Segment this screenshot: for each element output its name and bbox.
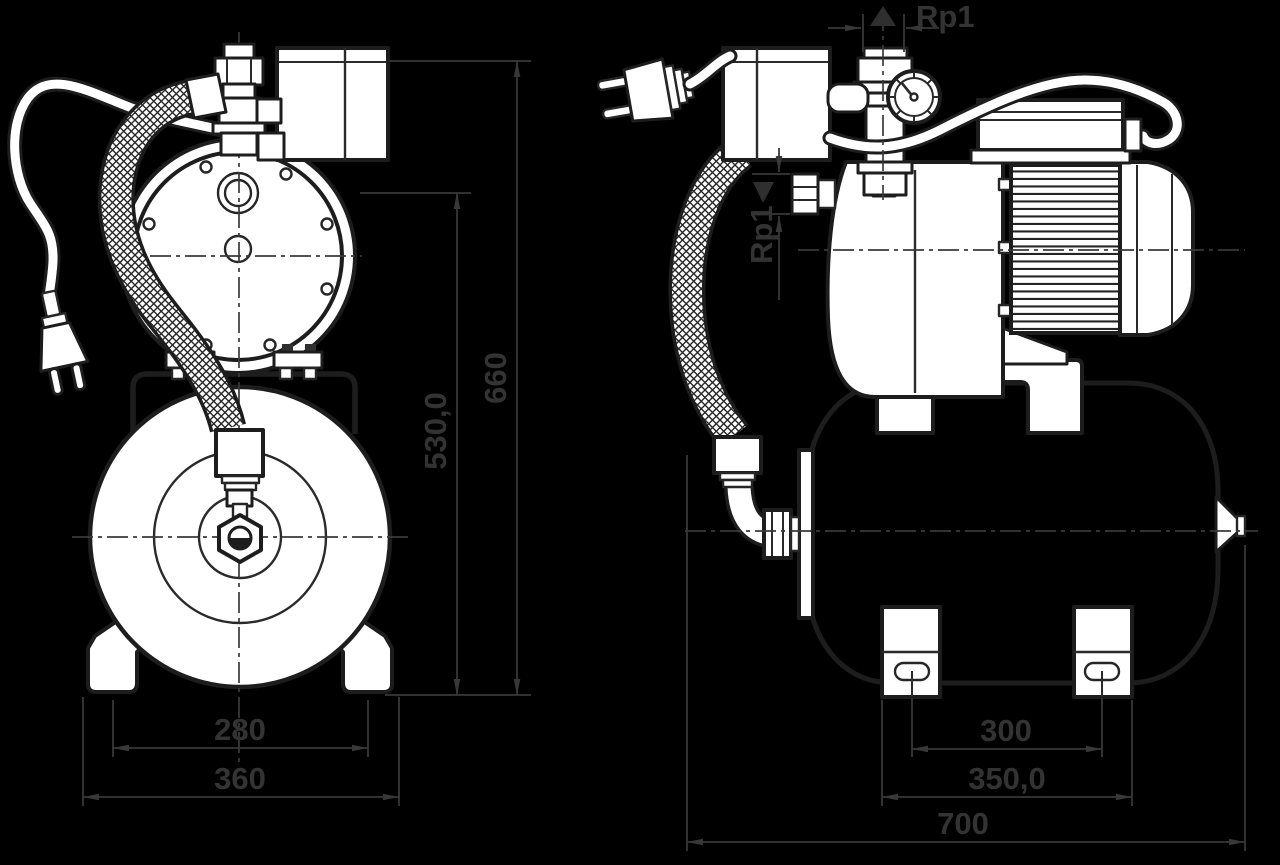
tee-lower [864, 173, 906, 195]
flow-arrow-up [870, 6, 896, 26]
clamp-nut [304, 368, 316, 379]
front-view: 660 530,0 280 360 [15, 32, 531, 806]
motor-fins [1011, 165, 1120, 333]
dimension-drawing-canvas: 660 530,0 280 360 [0, 0, 1280, 865]
air-valve-cone [1216, 497, 1238, 552]
cable-gland [1125, 119, 1141, 151]
pressure-switch-box-side [723, 48, 830, 160]
pressure-tank-side [806, 383, 1218, 683]
fill-port-inner [225, 180, 251, 206]
tee-branch-right [257, 99, 281, 123]
air-valve-cap [1237, 516, 1245, 536]
hose-ferrule-bottom [714, 437, 761, 473]
hose-ferrule-top [186, 74, 226, 118]
union-nut-side [764, 510, 791, 558]
tank-foot-side-left [882, 607, 940, 697]
port-fitting [792, 174, 818, 214]
bolt-hole [322, 219, 333, 230]
dim-label-inlet-height: 530,0 [418, 392, 453, 470]
union-washer [791, 517, 799, 551]
coupling-ring [723, 480, 752, 487]
tee-neck [223, 84, 255, 98]
pressure-switch-box-front [277, 48, 388, 160]
dim-label-total-height: 660 [478, 352, 513, 404]
strain-relief [42, 291, 61, 317]
hose-braid [687, 152, 741, 436]
bolt-hole [322, 284, 333, 295]
elbow-fitting [739, 487, 799, 558]
dim-label-discharge-port: Rp1 [916, 0, 975, 34]
tee-flange [858, 162, 912, 173]
shaft-center-port [225, 236, 251, 262]
flow-arrow-down [753, 182, 774, 203]
dim-label-slot-centers: 300 [980, 713, 1032, 748]
suction-port [792, 174, 835, 214]
power-plug-side [596, 55, 697, 130]
tank-foot-side-right [1074, 607, 1132, 697]
dim-label-suction-port: Rp1 [744, 205, 779, 264]
tee-lower [221, 133, 257, 155]
power-plug-front [25, 287, 93, 397]
switch-connection-stub [828, 84, 868, 112]
side-view: Rp1 Rp1 300 350,0 700 [596, 0, 1258, 851]
tee-outlet-right [258, 133, 284, 160]
bolt-hole [265, 340, 276, 351]
terminal-box-flange [971, 150, 1130, 163]
hose-side [687, 152, 761, 487]
plug-pin [71, 363, 85, 390]
port-boss [817, 180, 835, 208]
union-nut [215, 58, 263, 85]
dim-label-foot-centers: 280 [214, 712, 266, 747]
plug-pin [49, 368, 63, 395]
motor-end-cap [1120, 162, 1193, 335]
strap-clamp-plate-right [274, 352, 322, 368]
tank-flange-plate [799, 450, 813, 618]
bolt-hole [281, 169, 292, 180]
dim-label-foot-span: 350,0 [968, 761, 1046, 796]
pump-dimension-drawing: 660 530,0 280 360 [0, 0, 1280, 865]
dim-label-total-length: 700 [937, 806, 989, 841]
clamp-nut [280, 368, 292, 379]
gauge-hub [911, 94, 918, 101]
dim-label-base-width: 360 [214, 761, 266, 796]
bolt-hole [201, 162, 212, 173]
bolt-hole [144, 219, 155, 230]
coupling-ferrule [216, 430, 263, 476]
